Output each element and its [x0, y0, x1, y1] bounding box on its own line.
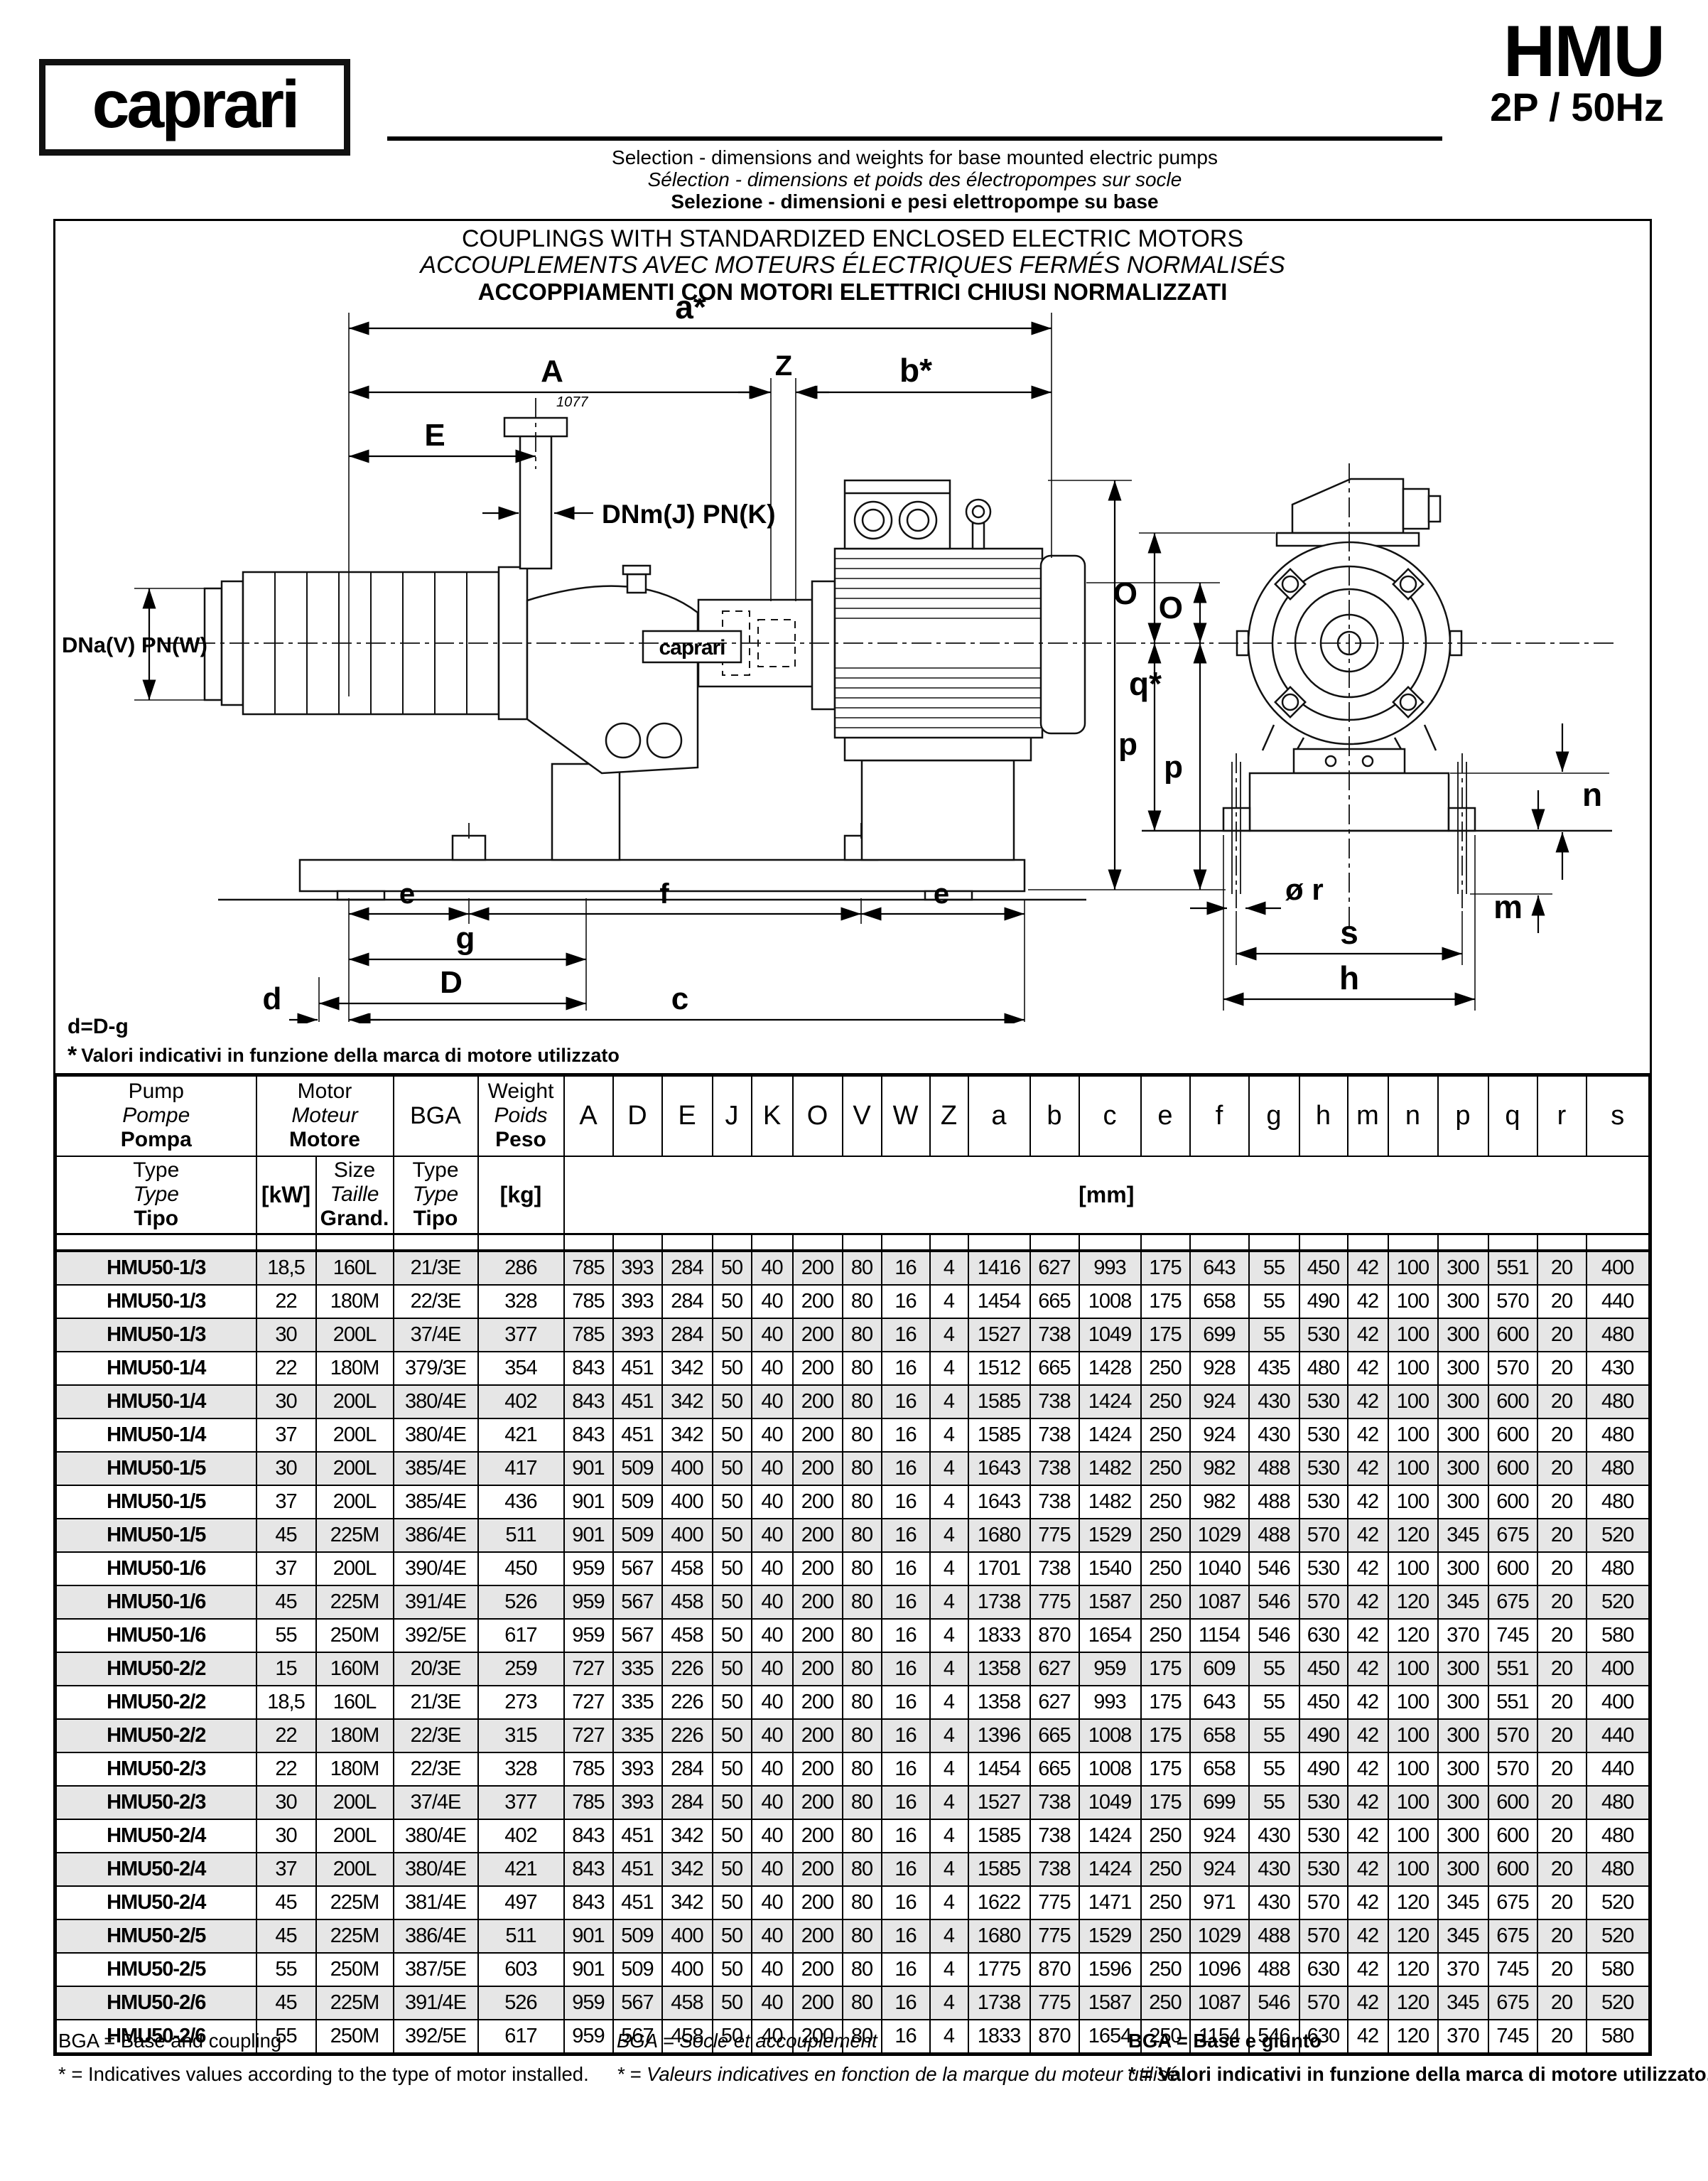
- dim-D-cell: 451: [613, 1853, 662, 1886]
- dim-a-cell: 1585: [968, 1819, 1030, 1853]
- table-row: HMU50-2/330200L37/4E37778539328450402008…: [55, 1786, 1650, 1819]
- spacer-cell: [1438, 1234, 1488, 1251]
- dim-W-cell: 16: [882, 1819, 930, 1853]
- dim-a-cell: 1643: [968, 1452, 1030, 1485]
- dim-V-cell: 80: [843, 1485, 882, 1519]
- bga-cell: 392/5E: [394, 1619, 478, 1652]
- dim-a-cell: 1701: [968, 1552, 1030, 1585]
- dim-O-cell: 200: [793, 1285, 843, 1318]
- spacer-cell: [1190, 1234, 1249, 1251]
- pump-motor-side-view: [205, 418, 1086, 900]
- dim-f-cell: 658: [1190, 1719, 1249, 1752]
- dim-O-cell: 200: [793, 1986, 843, 2020]
- dim-label-dna: DNa(V) PN(W): [62, 632, 207, 657]
- dim-b-cell: 627: [1030, 1652, 1079, 1686]
- dim-E-cell: 400: [662, 1485, 713, 1519]
- dim-a-cell: 1775: [968, 1953, 1030, 1986]
- dim-K-cell: 40: [752, 1652, 793, 1686]
- footer-it-bga: BGA = Base e giunto: [1128, 2030, 1708, 2052]
- dim-O-cell: 200: [793, 1452, 843, 1485]
- kw-cell: 55: [256, 1619, 316, 1652]
- bga-cell: 391/4E: [394, 1585, 478, 1619]
- dim-c-cell: 993: [1079, 1251, 1141, 1285]
- kg-cell: 259: [478, 1652, 564, 1686]
- dim-D-cell: 451: [613, 1352, 662, 1385]
- pump-type-cell: HMU50-2/6: [55, 1986, 256, 2020]
- dim-O-cell: 200: [793, 1719, 843, 1752]
- col-header-D: D: [613, 1075, 662, 1156]
- dim-J-cell: 50: [713, 1385, 752, 1418]
- size-cell: 200L: [316, 1385, 394, 1418]
- kg-cell: 436: [478, 1485, 564, 1519]
- dim-D-cell: 451: [613, 1819, 662, 1853]
- dim-e-cell: 175: [1141, 1786, 1190, 1819]
- dim-label-h: h: [1339, 959, 1359, 996]
- bga-cell: 379/3E: [394, 1352, 478, 1385]
- caprari-logo-text: caprari: [92, 66, 298, 144]
- dim-Z-cell: 4: [930, 1786, 968, 1819]
- dim-h-cell: 530: [1299, 1418, 1348, 1452]
- dim-m-cell: 42: [1348, 1251, 1388, 1285]
- col-header-p: p: [1438, 1075, 1488, 1156]
- dim-s-cell: 440: [1587, 1285, 1650, 1318]
- pump-serial-label: 1077: [556, 394, 588, 410]
- kw-cell: 37: [256, 1418, 316, 1452]
- table-row: HMU50-1/655250M392/5E6179595674585040200…: [55, 1619, 1650, 1652]
- dim-q-cell: 675: [1488, 1919, 1537, 1953]
- dim-s-cell: 480: [1587, 1819, 1650, 1853]
- dim-s-cell: 480: [1587, 1853, 1650, 1886]
- dim-p-cell: 345: [1438, 1519, 1488, 1552]
- dim-b-cell: 738: [1030, 1418, 1079, 1452]
- pump-type-cell: HMU50-1/4: [55, 1352, 256, 1385]
- dim-n-cell: 100: [1388, 1652, 1438, 1686]
- dimensions-table: Pump Pompe Pompa Motor Moteur Motore BGA…: [53, 1073, 1652, 2056]
- dim-f-cell: 982: [1190, 1485, 1249, 1519]
- dim-b-cell: 665: [1030, 1352, 1079, 1385]
- size-cell: 200L: [316, 1418, 394, 1452]
- dim-D-cell: 509: [613, 1519, 662, 1552]
- dim-r-cell: 20: [1537, 1251, 1587, 1285]
- dim-J-cell: 50: [713, 1752, 752, 1786]
- page-title-sub: 2P / 50Hz: [1490, 84, 1664, 130]
- table-row: HMU50-1/330200L37/4E37778539328450402008…: [55, 1318, 1650, 1352]
- catalog-page: caprari Selection - dimensions and weigh…: [0, 0, 1708, 2181]
- dim-r-cell: 20: [1537, 1285, 1587, 1318]
- dim-label-f: f: [659, 878, 669, 910]
- dim-b-cell: 775: [1030, 1886, 1079, 1919]
- pump-type-cell: HMU50-2/2: [55, 1719, 256, 1752]
- col-header-J: J: [713, 1075, 752, 1156]
- dim-V-cell: 80: [843, 1519, 882, 1552]
- kw-cell: 45: [256, 1986, 316, 2020]
- dim-J-cell: 50: [713, 1886, 752, 1919]
- dim-A-cell: 785: [564, 1752, 613, 1786]
- dim-V-cell: 80: [843, 1385, 882, 1418]
- table-row: HMU50-1/545225M386/4E5119015094005040200…: [55, 1519, 1650, 1552]
- dim-a-cell: 1585: [968, 1385, 1030, 1418]
- kw-cell: 22: [256, 1752, 316, 1786]
- dim-q-cell: 551: [1488, 1652, 1537, 1686]
- bga-cell: 21/3E: [394, 1251, 478, 1285]
- dim-e-cell: 175: [1141, 1719, 1190, 1752]
- kg-cell: 402: [478, 1385, 564, 1418]
- dim-J-cell: 50: [713, 1552, 752, 1585]
- dim-O-cell: 200: [793, 1886, 843, 1919]
- spacer-cell: [968, 1234, 1030, 1251]
- dim-Z-cell: 4: [930, 1686, 968, 1719]
- footer-fr: BGA = Socle et accouplement * = Valeurs …: [617, 2030, 1184, 2086]
- dim-h-cell: 570: [1299, 1585, 1348, 1619]
- dim-label-p-end: p: [1118, 727, 1137, 762]
- motor-label-en: Motor: [257, 1079, 393, 1104]
- motor-label-fr: Moteur: [257, 1104, 393, 1128]
- dim-h-cell: 530: [1299, 1318, 1348, 1352]
- dim-m-cell: 42: [1348, 1686, 1388, 1719]
- bga-cell: 381/4E: [394, 1886, 478, 1919]
- dim-h-cell: 530: [1299, 1819, 1348, 1853]
- dim-s-cell: 520: [1587, 1585, 1650, 1619]
- dim-b-cell: 665: [1030, 1752, 1079, 1786]
- spacer-cell: [1141, 1234, 1190, 1251]
- dim-r-cell: 20: [1537, 1385, 1587, 1418]
- dim-V-cell: 80: [843, 1752, 882, 1786]
- dim-V-cell: 80: [843, 1552, 882, 1585]
- table-row: HMU50-1/645225M391/4E5269595674585040200…: [55, 1585, 1650, 1619]
- table-row: HMU50-2/545225M386/4E5119015094005040200…: [55, 1919, 1650, 1953]
- spacer-cell: [930, 1234, 968, 1251]
- dim-b-cell: 775: [1030, 1585, 1079, 1619]
- kg-cell: 511: [478, 1519, 564, 1552]
- dim-D-cell: 393: [613, 1251, 662, 1285]
- dim-f-cell: 924: [1190, 1418, 1249, 1452]
- dim-D-cell: 451: [613, 1886, 662, 1919]
- dim-q-cell: 600: [1488, 1819, 1537, 1853]
- dim-n-cell: 120: [1388, 1953, 1438, 1986]
- header-divider: [387, 136, 1442, 141]
- dim-E-cell: 284: [662, 1285, 713, 1318]
- col-header-r: r: [1537, 1075, 1587, 1156]
- dim-a-cell: 1738: [968, 1585, 1030, 1619]
- col-header-motor: Motor Moteur Motore: [256, 1075, 394, 1156]
- subtitle-en: Selection - dimensions and weights for b…: [387, 146, 1442, 168]
- dim-K-cell: 40: [752, 1318, 793, 1352]
- bga-cell: 390/4E: [394, 1552, 478, 1585]
- dim-E-cell: 458: [662, 1619, 713, 1652]
- dim-K-cell: 40: [752, 1519, 793, 1552]
- size-label-it: Grand.: [317, 1207, 393, 1231]
- dim-Z-cell: 4: [930, 1318, 968, 1352]
- dim-m-cell: 42: [1348, 1452, 1388, 1485]
- kw-cell: 37: [256, 1552, 316, 1585]
- dim-A-cell: 785: [564, 1251, 613, 1285]
- footer-en-bga: BGA = Base and coupling: [58, 2030, 589, 2052]
- dim-s-cell: 480: [1587, 1552, 1650, 1585]
- kg-cell: 377: [478, 1318, 564, 1352]
- dim-Z-cell: 4: [930, 1853, 968, 1886]
- dim-K-cell: 40: [752, 1585, 793, 1619]
- dim-s-cell: 480: [1587, 1385, 1650, 1418]
- pump-type-cell: HMU50-2/5: [55, 1953, 256, 1986]
- dim-K-cell: 40: [752, 1285, 793, 1318]
- dim-f-cell: 1029: [1190, 1519, 1249, 1552]
- dim-J-cell: 50: [713, 1786, 752, 1819]
- pump-brand-label: caprari: [659, 636, 725, 659]
- dim-K-cell: 40: [752, 1418, 793, 1452]
- dim-D-cell: 393: [613, 1786, 662, 1819]
- page-subtitle: Selection - dimensions and weights for b…: [387, 146, 1442, 212]
- dim-e-cell: 250: [1141, 1619, 1190, 1652]
- table-header-row-2: Type Type Tipo [kW] Size Taille Grand. T…: [55, 1156, 1650, 1234]
- dim-q-cell: 570: [1488, 1352, 1537, 1385]
- dim-a-cell: 1416: [968, 1251, 1030, 1285]
- dim-K-cell: 40: [752, 1986, 793, 2020]
- dim-W-cell: 16: [882, 1519, 930, 1552]
- bga-cell: 22/3E: [394, 1752, 478, 1786]
- col-subheader-type: Type Type Tipo: [55, 1156, 256, 1234]
- dim-r-cell: 20: [1537, 1585, 1587, 1619]
- dim-p-cell: 345: [1438, 1986, 1488, 2020]
- dim-q-cell: 570: [1488, 1285, 1537, 1318]
- dim-g-cell: 546: [1249, 1585, 1299, 1619]
- dim-f-cell: 658: [1190, 1752, 1249, 1786]
- dim-W-cell: 16: [882, 1686, 930, 1719]
- dim-b-cell: 738: [1030, 1786, 1079, 1819]
- dim-A-cell: 785: [564, 1318, 613, 1352]
- dim-V-cell: 80: [843, 1418, 882, 1452]
- kw-cell: 45: [256, 1886, 316, 1919]
- dim-h-cell: 480: [1299, 1352, 1348, 1385]
- dim-n-cell: 120: [1388, 1919, 1438, 1953]
- dim-q-cell: 600: [1488, 1853, 1537, 1886]
- dim-s-cell: 480: [1587, 1418, 1650, 1452]
- dim-D-cell: 509: [613, 1919, 662, 1953]
- dim-s-cell: 580: [1587, 1953, 1650, 1986]
- size-cell: 160M: [316, 1652, 394, 1686]
- dim-g-cell: 546: [1249, 1619, 1299, 1652]
- col-header-V: V: [843, 1075, 882, 1156]
- dim-b-cell: 738: [1030, 1552, 1079, 1585]
- dim-label-r: ø r: [1285, 873, 1324, 906]
- motor-label-it: Motore: [257, 1128, 393, 1152]
- bga-cell: 385/4E: [394, 1452, 478, 1485]
- kw-cell: 45: [256, 1519, 316, 1552]
- spacer-cell: [1488, 1234, 1537, 1251]
- kg-cell: 315: [478, 1719, 564, 1752]
- dim-J-cell: 50: [713, 1352, 752, 1385]
- dim-E-cell: 458: [662, 1585, 713, 1619]
- table-row: HMU50-1/422180M379/3E3548434513425040200…: [55, 1352, 1650, 1385]
- col-header-c: c: [1079, 1075, 1141, 1156]
- footer-en-note: * = Indicatives values according to the …: [58, 2063, 589, 2086]
- size-cell: 160L: [316, 1686, 394, 1719]
- kg-cell: 402: [478, 1819, 564, 1853]
- pump-type-cell: HMU50-2/2: [55, 1652, 256, 1686]
- col-subheader-size: Size Taille Grand.: [316, 1156, 394, 1234]
- col-subheader-kg: [kg]: [478, 1156, 564, 1234]
- dim-s-cell: 480: [1587, 1318, 1650, 1352]
- size-label-en: Size: [317, 1158, 393, 1183]
- dim-O-cell: 200: [793, 1752, 843, 1786]
- dim-m-cell: 42: [1348, 1786, 1388, 1819]
- kw-cell: 30: [256, 1786, 316, 1819]
- col-header-W: W: [882, 1075, 930, 1156]
- size-cell: 250M: [316, 1953, 394, 1986]
- dim-g-cell: 55: [1249, 1652, 1299, 1686]
- note-italian: *Valori indicativi in funzione della mar…: [67, 1042, 620, 1070]
- dim-g-cell: 55: [1249, 1251, 1299, 1285]
- dim-m-cell: 42: [1348, 1652, 1388, 1686]
- dim-m-cell: 42: [1348, 1819, 1388, 1853]
- dim-a-cell: 1396: [968, 1719, 1030, 1752]
- dim-n-cell: 100: [1388, 1452, 1438, 1485]
- kg-cell: 603: [478, 1953, 564, 1986]
- dim-m-cell: 42: [1348, 1285, 1388, 1318]
- dim-e-cell: 175: [1141, 1686, 1190, 1719]
- dim-K-cell: 40: [752, 1352, 793, 1385]
- dim-W-cell: 16: [882, 1886, 930, 1919]
- size-cell: 180M: [316, 1352, 394, 1385]
- weight-label-en: Weight: [479, 1079, 563, 1104]
- dim-s-cell: 480: [1587, 1485, 1650, 1519]
- dim-A-cell: 901: [564, 1953, 613, 1986]
- dim-A-cell: 901: [564, 1519, 613, 1552]
- size-cell: 225M: [316, 1585, 394, 1619]
- dim-q-cell: 675: [1488, 1585, 1537, 1619]
- dim-O-cell: 200: [793, 1786, 843, 1819]
- col-header-K: K: [752, 1075, 793, 1156]
- pump-type-cell: HMU50-1/4: [55, 1418, 256, 1452]
- dim-label-e1: e: [399, 878, 415, 910]
- dim-q-cell: 551: [1488, 1686, 1537, 1719]
- dim-a-cell: 1738: [968, 1986, 1030, 2020]
- dim-a-cell: 1512: [968, 1352, 1030, 1385]
- dim-D-cell: 509: [613, 1953, 662, 1986]
- dim-q-cell: 551: [1488, 1251, 1537, 1285]
- dim-e-cell: 250: [1141, 1552, 1190, 1585]
- dim-n-cell: 100: [1388, 1853, 1438, 1886]
- dim-E-cell: 342: [662, 1418, 713, 1452]
- dim-c-cell: 1654: [1079, 1619, 1141, 1652]
- bga-cell: 22/3E: [394, 1285, 478, 1318]
- col-header-f: f: [1190, 1075, 1249, 1156]
- dim-e-cell: 250: [1141, 1953, 1190, 1986]
- dim-n-cell: 100: [1388, 1318, 1438, 1352]
- col-header-pump: Pump Pompe Pompa: [55, 1075, 256, 1156]
- table-row: HMU50-1/437200L380/4E4218434513425040200…: [55, 1418, 1650, 1452]
- dim-A-cell: 727: [564, 1719, 613, 1752]
- pump-type-cell: HMU50-1/6: [55, 1552, 256, 1585]
- dim-O-cell: 200: [793, 1418, 843, 1452]
- dim-r-cell: 20: [1537, 1752, 1587, 1786]
- dim-h-cell: 570: [1299, 1886, 1348, 1919]
- dim-K-cell: 40: [752, 1452, 793, 1485]
- size-cell: 250M: [316, 1619, 394, 1652]
- bga-cell: 380/4E: [394, 1418, 478, 1452]
- dim-E-cell: 284: [662, 1318, 713, 1352]
- dim-label-a-star: a*: [675, 298, 706, 325]
- dim-K-cell: 40: [752, 1552, 793, 1585]
- pump-label-en: Pump: [57, 1079, 256, 1104]
- pump-label-it: Pompa: [57, 1128, 256, 1152]
- dim-f-cell: 658: [1190, 1285, 1249, 1318]
- dim-p-cell: 300: [1438, 1652, 1488, 1686]
- dim-s-cell: 400: [1587, 1686, 1650, 1719]
- col-header-b: b: [1030, 1075, 1079, 1156]
- dim-K-cell: 40: [752, 1385, 793, 1418]
- box-title-fr: ACCOUPLEMENTS AVEC MOTEURS ÉLECTRIQUES F…: [53, 252, 1652, 279]
- dim-e-cell: 175: [1141, 1251, 1190, 1285]
- dim-W-cell: 16: [882, 1285, 930, 1318]
- dim-V-cell: 80: [843, 1919, 882, 1953]
- dim-r-cell: 20: [1537, 1652, 1587, 1686]
- bga-type-label-en: Type: [394, 1158, 477, 1183]
- dim-A-cell: 901: [564, 1452, 613, 1485]
- dim-O-cell: 200: [793, 1318, 843, 1352]
- dim-g-cell: 430: [1249, 1819, 1299, 1853]
- dim-O-cell: 200: [793, 1686, 843, 1719]
- dim-label-dnm: DNm(J) PN(K): [602, 500, 776, 529]
- dim-label-O-side: O: [1159, 591, 1183, 625]
- dim-D-cell: 451: [613, 1385, 662, 1418]
- dim-label-q-star: q*: [1129, 665, 1162, 702]
- dim-b-cell: 738: [1030, 1452, 1079, 1485]
- dim-A-cell: 959: [564, 1986, 613, 2020]
- dim-O-cell: 200: [793, 1552, 843, 1585]
- dim-A-cell: 727: [564, 1686, 613, 1719]
- dim-Z-cell: 4: [930, 1452, 968, 1485]
- dim-f-cell: 1087: [1190, 1585, 1249, 1619]
- dim-A-cell: 843: [564, 1853, 613, 1886]
- dim-c-cell: 1540: [1079, 1552, 1141, 1585]
- dim-m-cell: 42: [1348, 1385, 1388, 1418]
- col-header-m: m: [1348, 1075, 1388, 1156]
- table-row: HMU50-1/430200L380/4E4028434513425040200…: [55, 1385, 1650, 1418]
- bga-cell: 22/3E: [394, 1719, 478, 1752]
- dim-W-cell: 16: [882, 1251, 930, 1285]
- dim-J-cell: 50: [713, 1585, 752, 1619]
- dim-label-O-end: O: [1113, 576, 1137, 611]
- kg-cell: 497: [478, 1886, 564, 1919]
- dim-m-cell: 42: [1348, 1352, 1388, 1385]
- dim-h-cell: 570: [1299, 1919, 1348, 1953]
- dim-J-cell: 50: [713, 1251, 752, 1285]
- dim-e-cell: 175: [1141, 1752, 1190, 1786]
- dim-A-cell: 843: [564, 1385, 613, 1418]
- dim-Z-cell: 4: [930, 1519, 968, 1552]
- kw-cell: 18,5: [256, 1251, 316, 1285]
- dim-r-cell: 20: [1537, 1552, 1587, 1585]
- spacer-cell: [1249, 1234, 1299, 1251]
- kw-cell: 30: [256, 1819, 316, 1853]
- kw-cell: 45: [256, 1585, 316, 1619]
- dim-K-cell: 40: [752, 1886, 793, 1919]
- bga-cell: 380/4E: [394, 1819, 478, 1853]
- dim-E-cell: 342: [662, 1819, 713, 1853]
- dim-e-cell: 175: [1141, 1318, 1190, 1352]
- dim-p-cell: 370: [1438, 1953, 1488, 1986]
- dim-D-cell: 451: [613, 1418, 662, 1452]
- dim-O-cell: 200: [793, 1485, 843, 1519]
- dim-E-cell: 226: [662, 1719, 713, 1752]
- dim-Z-cell: 4: [930, 1285, 968, 1318]
- dim-J-cell: 50: [713, 1719, 752, 1752]
- dim-E-cell: 284: [662, 1786, 713, 1819]
- dim-E-cell: 226: [662, 1652, 713, 1686]
- col-header-O: O: [793, 1075, 843, 1156]
- dim-c-cell: 1008: [1079, 1719, 1141, 1752]
- dim-W-cell: 16: [882, 1853, 930, 1886]
